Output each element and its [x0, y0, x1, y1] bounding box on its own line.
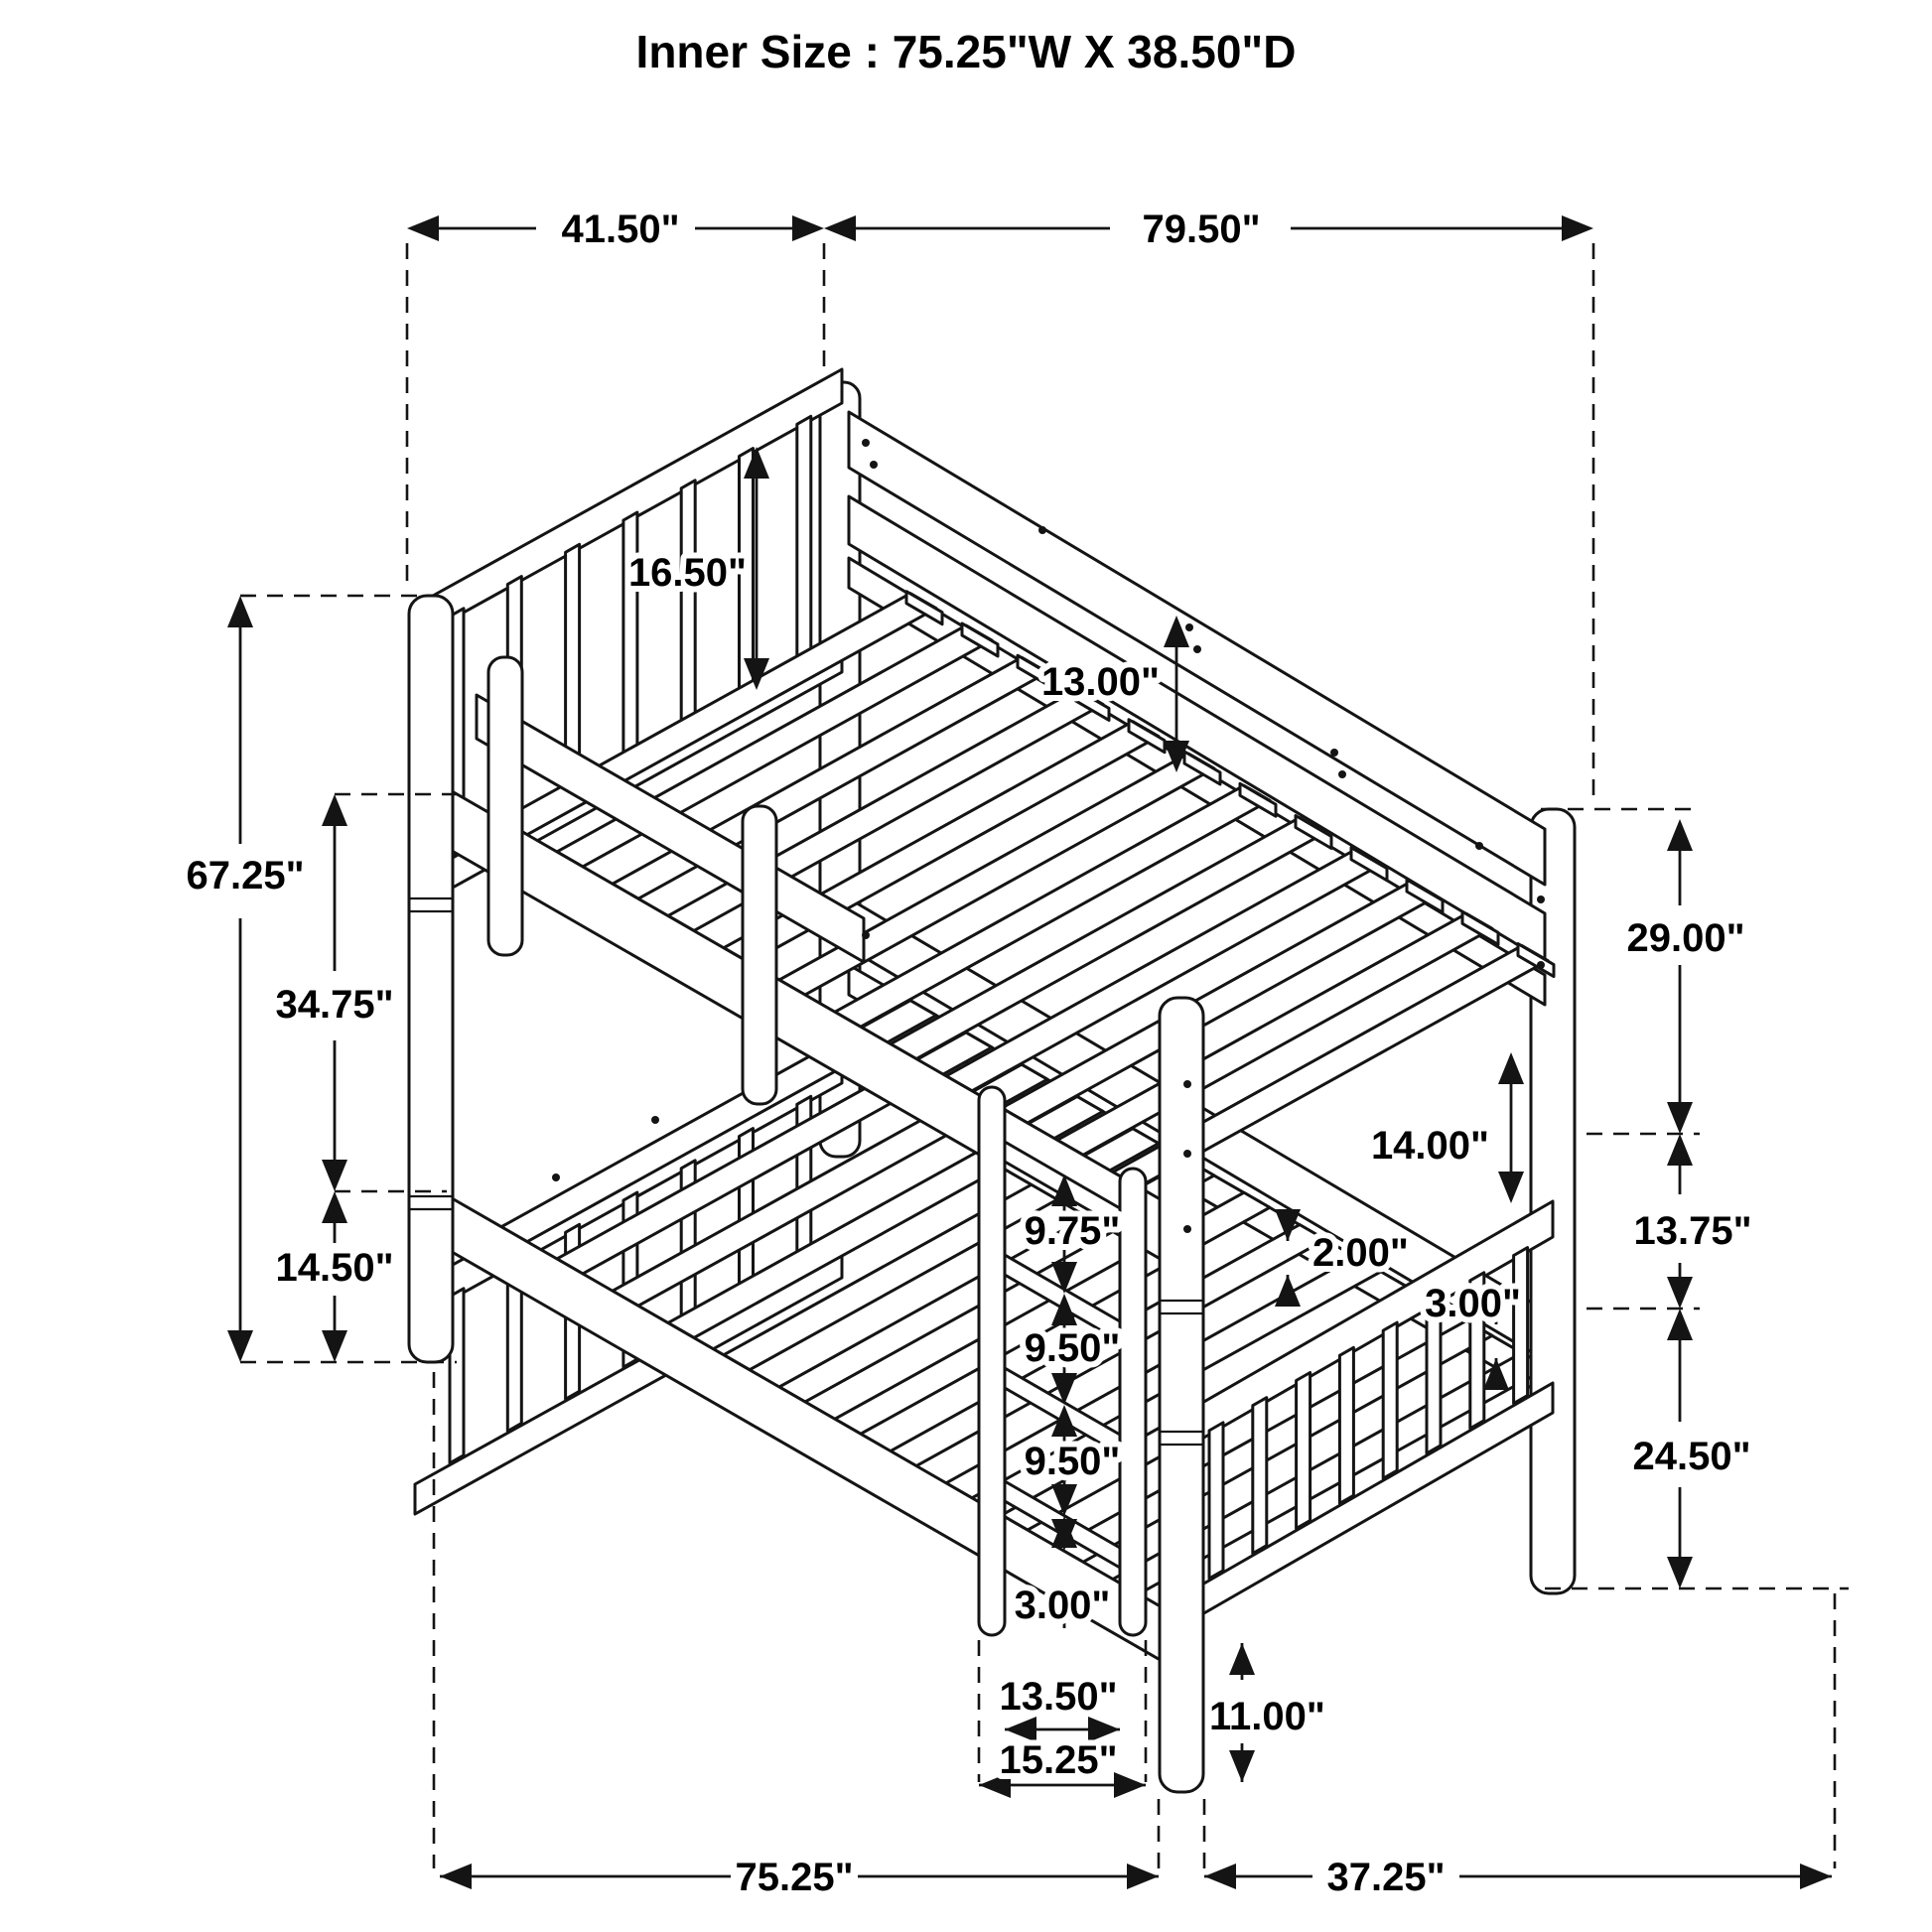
dim-label-rail-thickness: 3.00"	[1425, 1282, 1521, 1325]
dim-label-slat-thickness: 2.00"	[1312, 1231, 1409, 1275]
dim-label-ladder-step-1: 9.75"	[1025, 1209, 1121, 1253]
dim-label-foot-mid: 13.75"	[1633, 1209, 1751, 1253]
diagram-page: Inner Size : 75.25"W X 38.50"D 41.50" 79…	[0, 0, 1932, 1932]
dim-label-clearance: 11.00"	[1209, 1695, 1325, 1738]
page-title: Inner Size : 75.25"W X 38.50"D	[636, 26, 1297, 77]
dim-label-bottom-depth: 37.25"	[1326, 1856, 1445, 1899]
dim-label-head-rail: 16.50"	[628, 551, 747, 595]
dim-label-ladder-outer: 15.25"	[999, 1738, 1117, 1782]
dim-label-back-panel: 13.00"	[1041, 660, 1160, 704]
dim-label-ladder-step-3: 9.50"	[1025, 1440, 1121, 1483]
dim-label-deck-to-deck: 34.75"	[275, 983, 393, 1027]
bunkbed-dimension-diagram: Inner Size : 75.25"W X 38.50"D 41.50" 79…	[0, 0, 1932, 1932]
dim-label-ladder-step-4: 3.00"	[1015, 1584, 1111, 1627]
dim-label-foot-lower: 24.50"	[1632, 1435, 1750, 1478]
dim-label-length: 79.50"	[1142, 207, 1260, 251]
dim-label-total-height: 67.25"	[186, 854, 304, 897]
dim-label-guard-gap: 14.00"	[1371, 1124, 1489, 1168]
dim-label-ladder-inner: 13.50"	[999, 1675, 1117, 1719]
dim-label-head-width: 41.50"	[561, 207, 679, 251]
dim-label-foot-top: 29.00"	[1626, 916, 1744, 960]
dim-label-ladder-step-2: 9.50"	[1025, 1326, 1121, 1370]
dim-label-bottom-length: 75.25"	[735, 1856, 853, 1899]
bed-drawing	[409, 369, 1575, 1792]
dim-label-lower-deck: 14.50"	[275, 1246, 393, 1290]
